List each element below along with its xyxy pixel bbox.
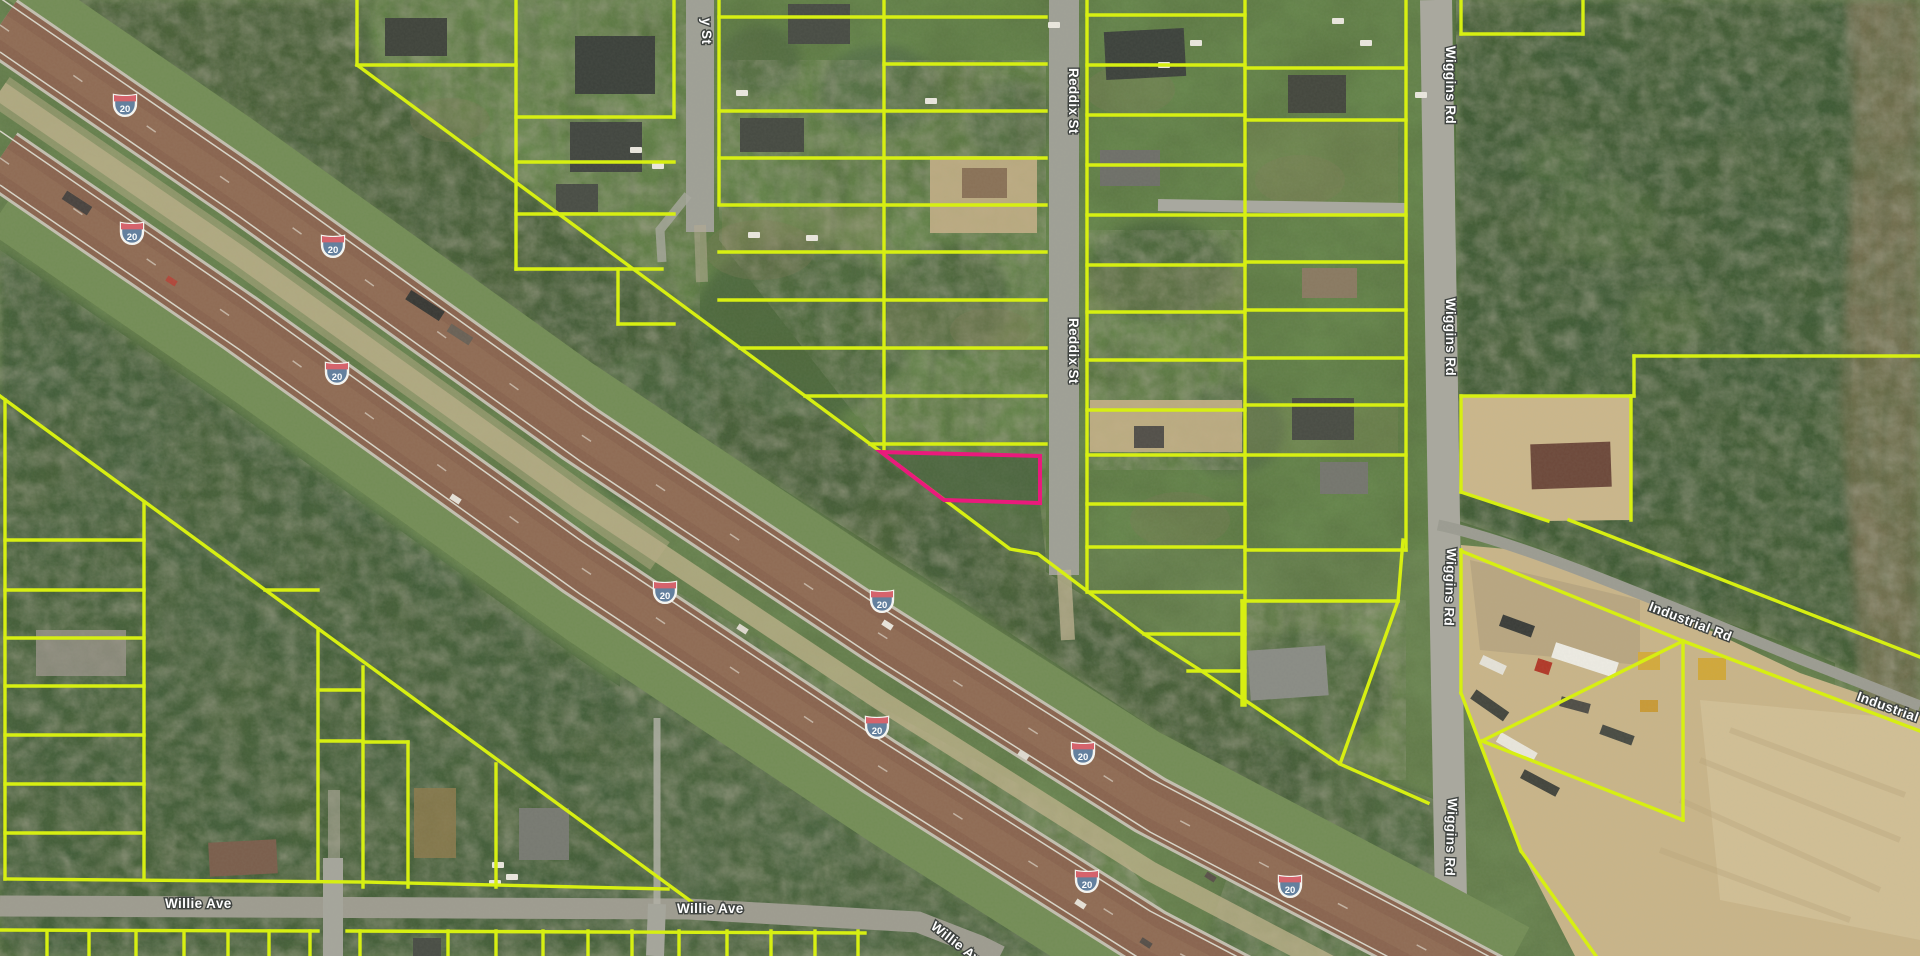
svg-text:Willie Ave: Willie Ave xyxy=(165,896,232,911)
svg-text:Willie Ave: Willie Ave xyxy=(677,901,744,916)
svg-text:y St: y St xyxy=(699,18,714,44)
svg-text:Wiggins Rd: Wiggins Rd xyxy=(1441,548,1459,627)
svg-text:Reddix St: Reddix St xyxy=(1066,318,1081,384)
svg-text:Wiggins Rd: Wiggins Rd xyxy=(1443,46,1458,124)
svg-text:Reddix St: Reddix St xyxy=(1066,68,1081,134)
svg-text:Wiggins Rd: Wiggins Rd xyxy=(1443,298,1458,376)
svg-text:Wiggins Rd: Wiggins Rd xyxy=(1442,798,1460,877)
